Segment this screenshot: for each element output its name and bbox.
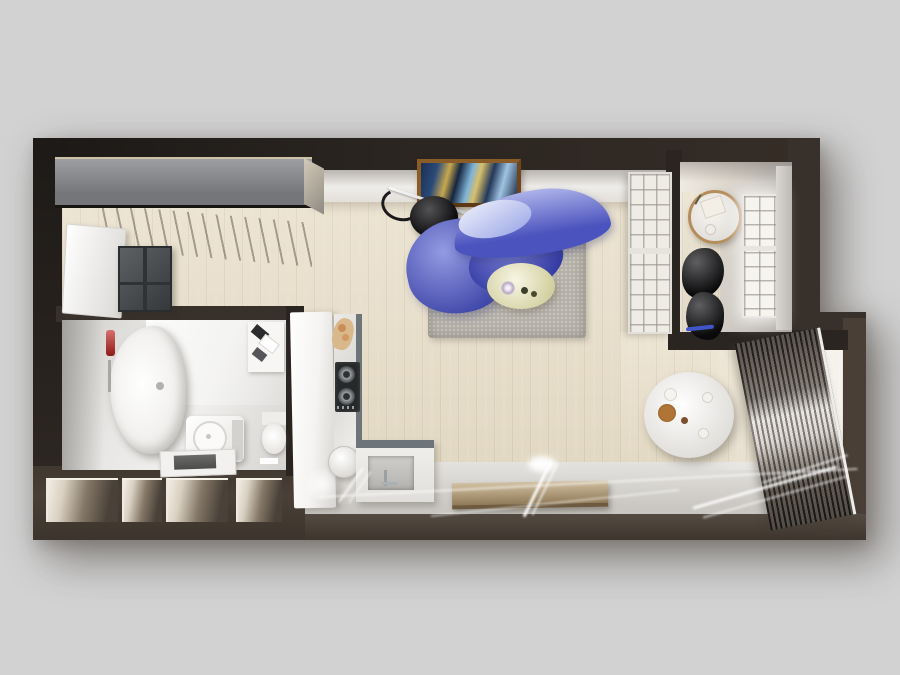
storage-cubby [46, 478, 118, 522]
study-window [742, 194, 778, 318]
study-right-wall-face [776, 166, 792, 330]
bathroom-doorway-glow [300, 468, 344, 500]
study-window-rail [742, 246, 778, 251]
dining-cup [702, 392, 713, 403]
apartment-building [0, 0, 900, 675]
wall-dispenser-red [106, 330, 115, 356]
french-door-rail [628, 248, 672, 254]
shower-tray-inset [174, 454, 216, 469]
dining-cup [698, 428, 709, 439]
towel-rail [108, 360, 111, 392]
dining-plate-cookies [658, 404, 676, 422]
coffee-table [487, 263, 555, 309]
dresser [118, 246, 172, 312]
bread-slice [342, 334, 349, 341]
hob-knobs [337, 406, 357, 409]
wardrobe-end-cap [304, 158, 324, 215]
bread-slice [338, 324, 346, 332]
coffee-table-decor-dot [521, 287, 528, 294]
hob-burner [338, 366, 355, 383]
storage-cubby [166, 478, 228, 522]
entry-door [62, 223, 127, 318]
side-table-cup [705, 224, 716, 235]
coffee-table-flower [501, 281, 515, 295]
wardrobe [55, 157, 312, 208]
storage-cubby [236, 478, 282, 522]
bathtub [110, 326, 186, 454]
dining-jug [664, 388, 677, 401]
dining-bowl-small [681, 417, 688, 424]
washing-machine-dial [206, 434, 211, 439]
render-canvas [0, 0, 900, 675]
hob-burner [338, 388, 355, 405]
bathroom [62, 320, 286, 470]
toilet-paper [260, 458, 278, 464]
bathroom-left-shade [62, 320, 104, 470]
sink-faucet-spout [382, 482, 398, 485]
bathtub-drain [156, 382, 164, 390]
storage-cubby [122, 478, 162, 522]
study-room [680, 162, 792, 332]
sculptural-chair-lower [686, 292, 724, 340]
coffee-table-decor-dot [531, 291, 537, 297]
window-light-glow [528, 456, 556, 472]
toilet-bowl [262, 424, 286, 454]
